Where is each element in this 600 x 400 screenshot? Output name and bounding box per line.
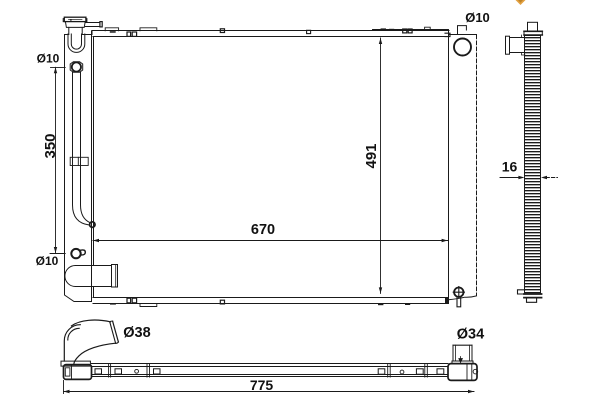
svg-text:Ø10: Ø10: [36, 254, 59, 268]
svg-text:491: 491: [363, 143, 380, 168]
svg-text:Ø10: Ø10: [37, 51, 60, 65]
svg-text:Ø38: Ø38: [123, 325, 150, 341]
svg-text:16: 16: [502, 159, 518, 175]
svg-text:Ø10: Ø10: [465, 10, 490, 25]
svg-text:775: 775: [250, 377, 274, 393]
svg-text:Ø34: Ø34: [457, 327, 484, 343]
svg-text:350: 350: [42, 133, 59, 158]
svg-text:670: 670: [251, 222, 275, 238]
